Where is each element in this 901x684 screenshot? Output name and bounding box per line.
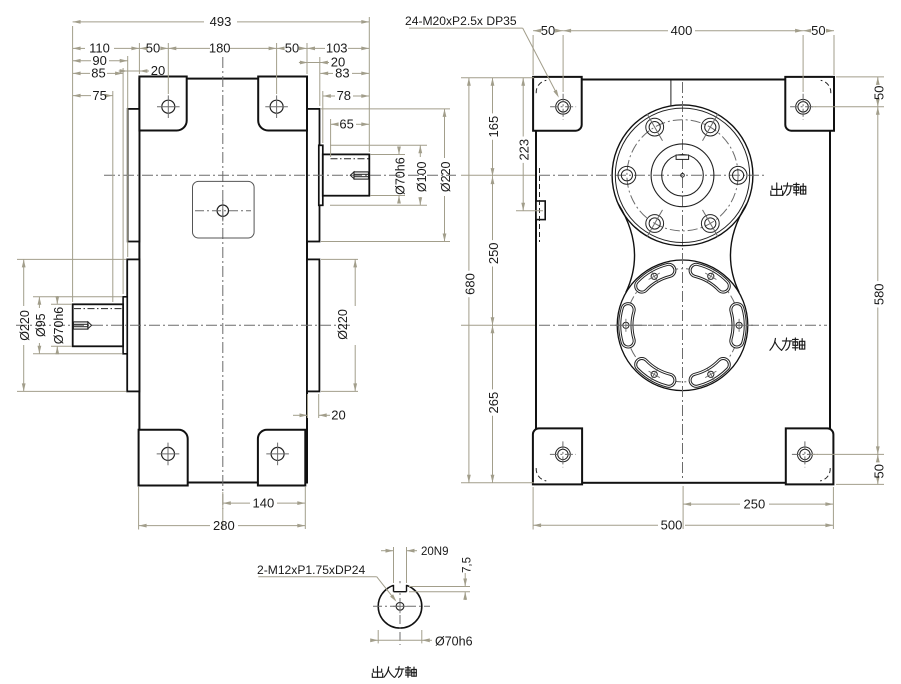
svg-text:400: 400 [671,23,693,38]
svg-text:280: 280 [213,518,235,533]
svg-text:Ø220: Ø220 [336,309,350,340]
svg-text:75: 75 [92,88,106,103]
svg-text:Ø220: Ø220 [18,310,32,341]
svg-text:103: 103 [326,41,348,56]
svg-text:50: 50 [871,464,886,478]
svg-text:2-M12xP1.75xDP24: 2-M12xP1.75xDP24 [257,563,366,577]
svg-text:Ø95: Ø95 [34,313,48,337]
svg-text:20: 20 [331,408,345,423]
svg-text:180: 180 [209,41,231,56]
svg-text:7,5: 7,5 [462,557,474,573]
svg-text:83: 83 [335,66,349,81]
svg-text:78: 78 [337,88,351,103]
svg-text:24-M20xP2.5x DP35: 24-M20xP2.5x DP35 [405,14,517,28]
svg-text:Ø70h6: Ø70h6 [435,634,473,648]
svg-text:20N9: 20N9 [421,546,449,558]
svg-text:250: 250 [486,242,501,264]
svg-text:680: 680 [462,273,477,295]
svg-text:Ø70h6: Ø70h6 [52,307,66,345]
svg-text:Ø220: Ø220 [439,161,453,192]
svg-text:140: 140 [253,495,275,510]
svg-text:250: 250 [744,496,766,511]
svg-text:50: 50 [285,41,299,56]
svg-text:Ø100: Ø100 [415,161,429,192]
svg-text:580: 580 [871,283,886,305]
svg-text:265: 265 [486,392,501,414]
svg-text:50: 50 [541,23,555,38]
svg-text:85: 85 [91,66,105,81]
svg-text:Ø70h6: Ø70h6 [394,157,408,195]
svg-text:223: 223 [517,139,532,161]
svg-text:20: 20 [151,63,165,78]
svg-text:65: 65 [339,117,353,132]
svg-text:50: 50 [811,23,825,38]
svg-text:500: 500 [661,518,683,533]
svg-text:165: 165 [486,116,501,138]
svg-text:50: 50 [871,86,886,100]
svg-text:493: 493 [210,14,232,29]
svg-text:50: 50 [146,41,160,56]
